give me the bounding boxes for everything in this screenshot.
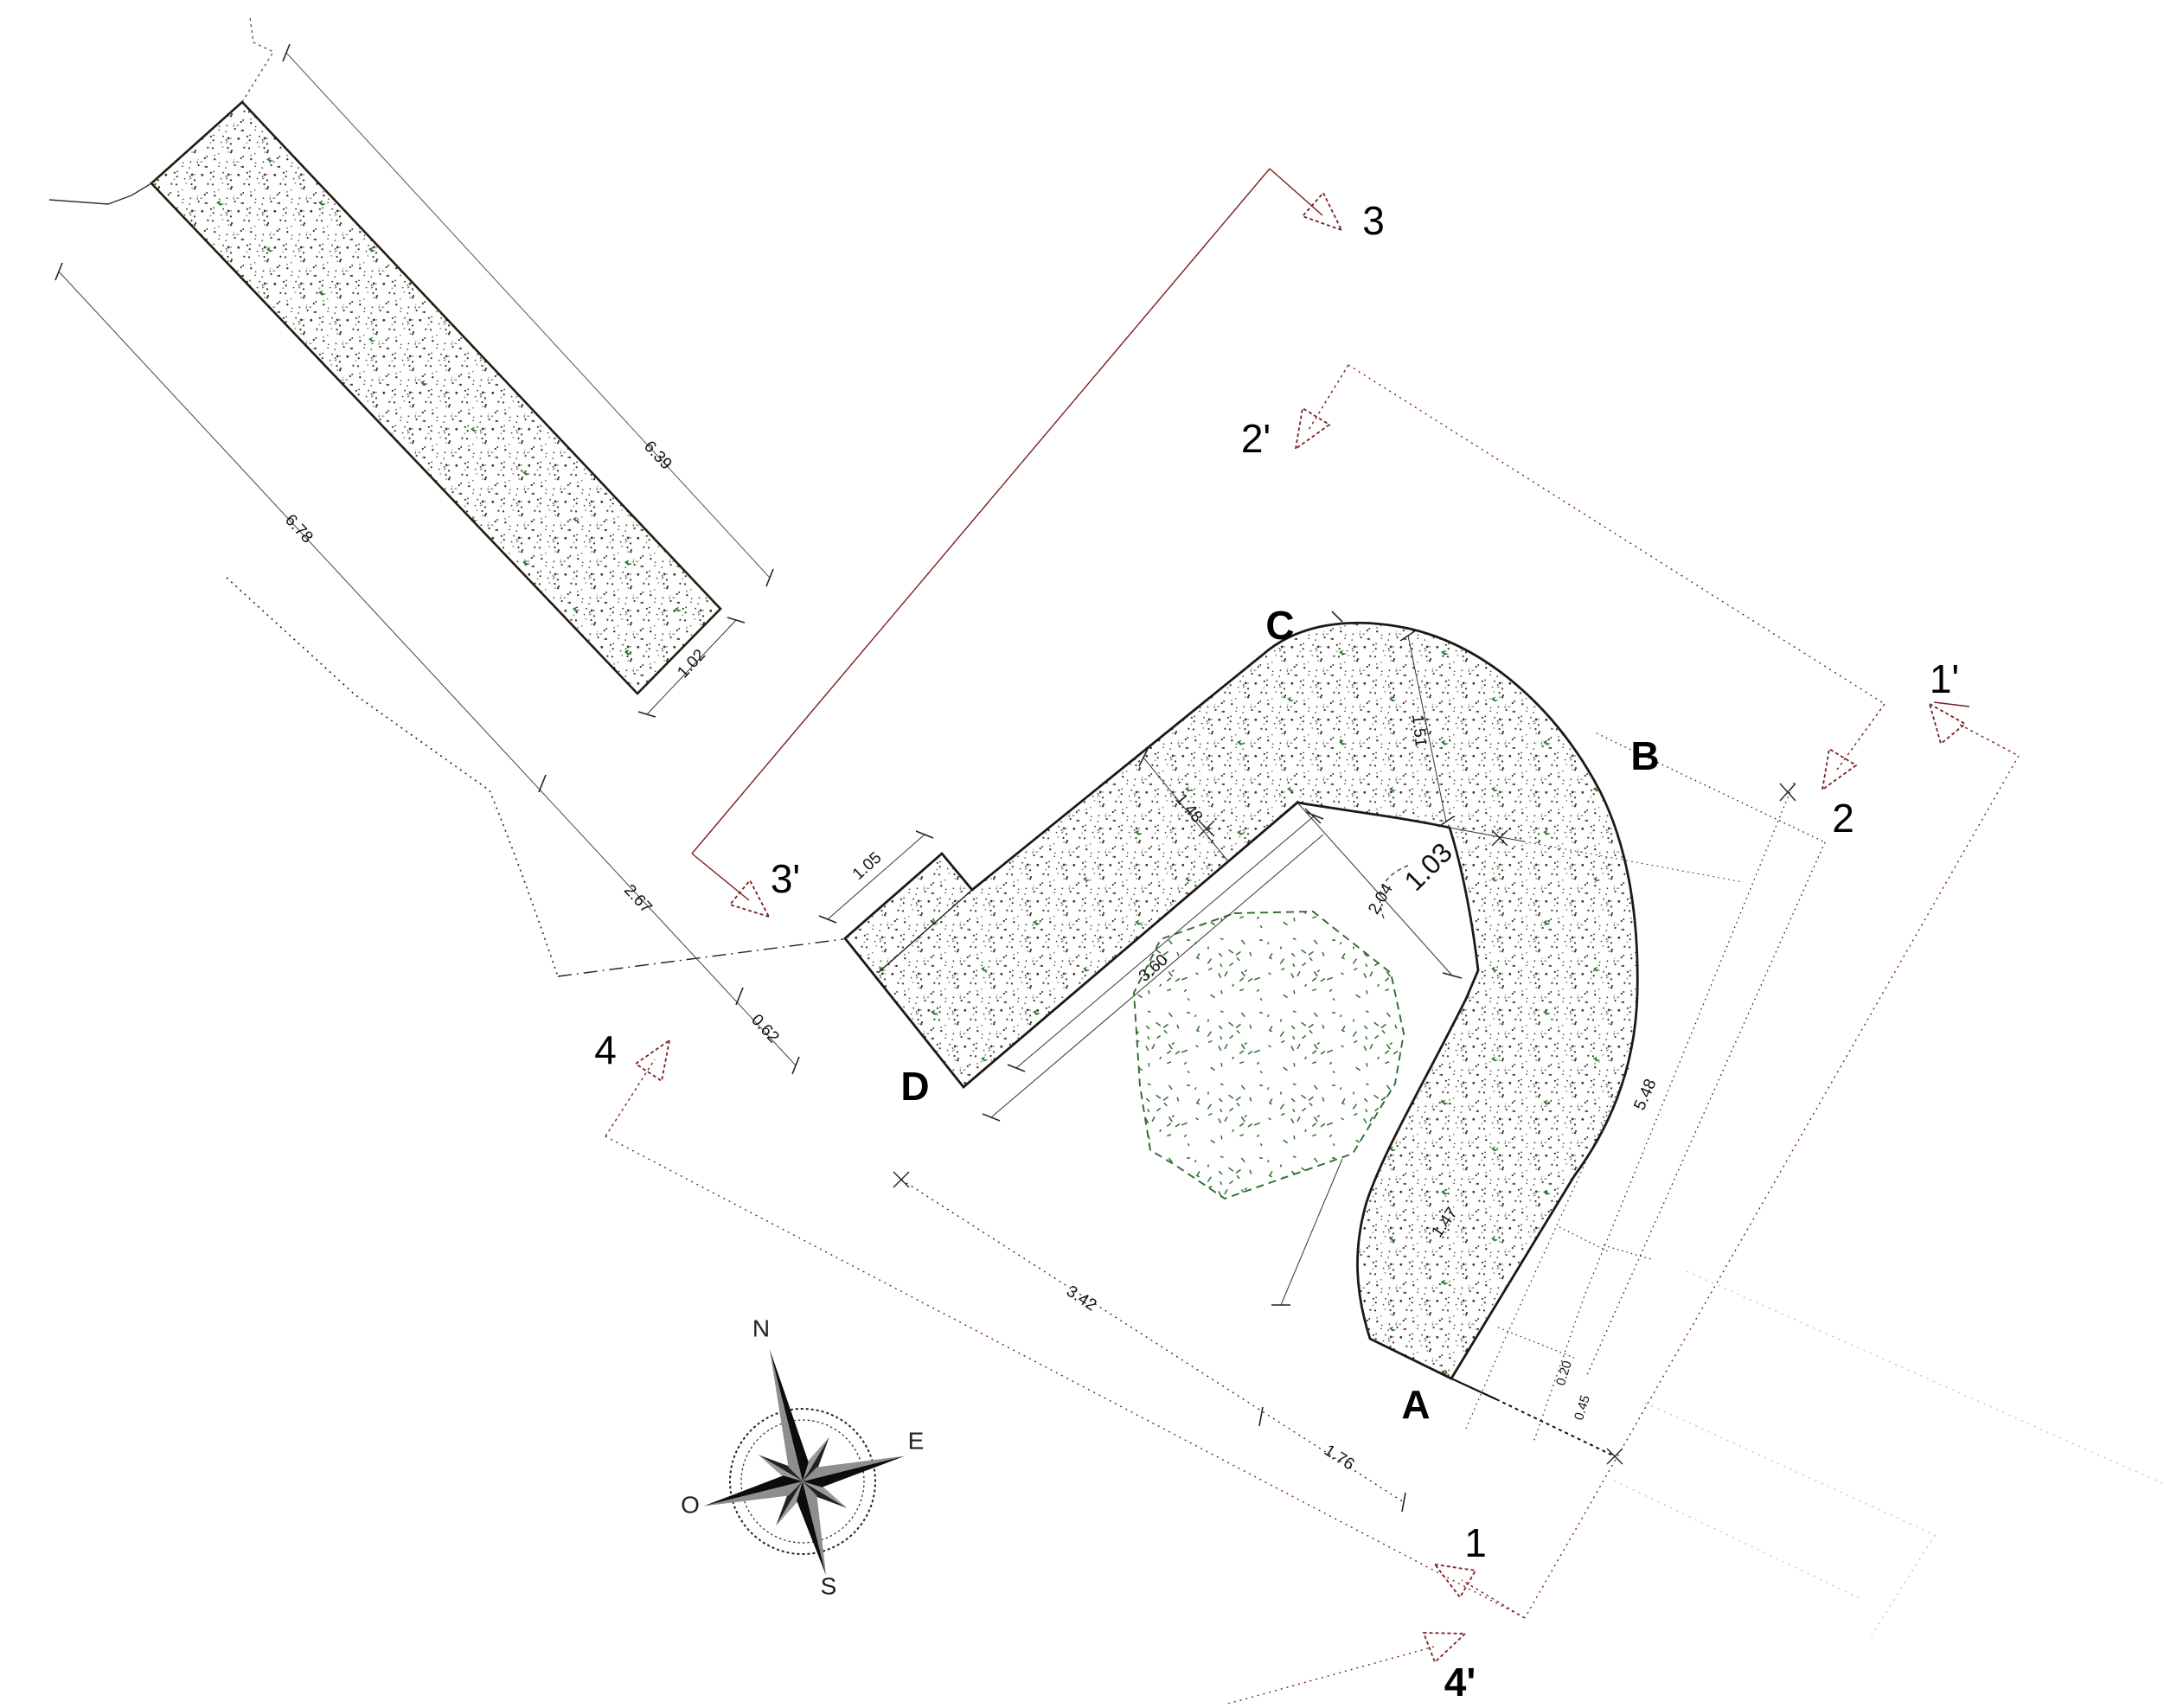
svg-text:2: 2: [1832, 796, 1854, 841]
svg-text:E: E: [908, 1427, 925, 1454]
svg-text:1': 1': [1930, 656, 1959, 701]
svg-text:2': 2': [1241, 416, 1271, 461]
svg-text:C: C: [1265, 603, 1294, 648]
svg-text:4': 4': [1444, 1660, 1476, 1704]
svg-text:1: 1: [1464, 1520, 1487, 1565]
svg-text:S: S: [821, 1572, 837, 1599]
svg-text:O: O: [681, 1491, 700, 1518]
svg-text:A: A: [1401, 1382, 1430, 1427]
svg-text:D: D: [900, 1064, 929, 1109]
svg-text:1.51: 1.51: [1408, 713, 1430, 747]
svg-text:3': 3': [771, 856, 800, 901]
svg-text:B: B: [1630, 733, 1659, 778]
svg-text:N: N: [752, 1315, 770, 1341]
svg-text:4: 4: [594, 1027, 617, 1072]
svg-text:3: 3: [1362, 198, 1385, 243]
